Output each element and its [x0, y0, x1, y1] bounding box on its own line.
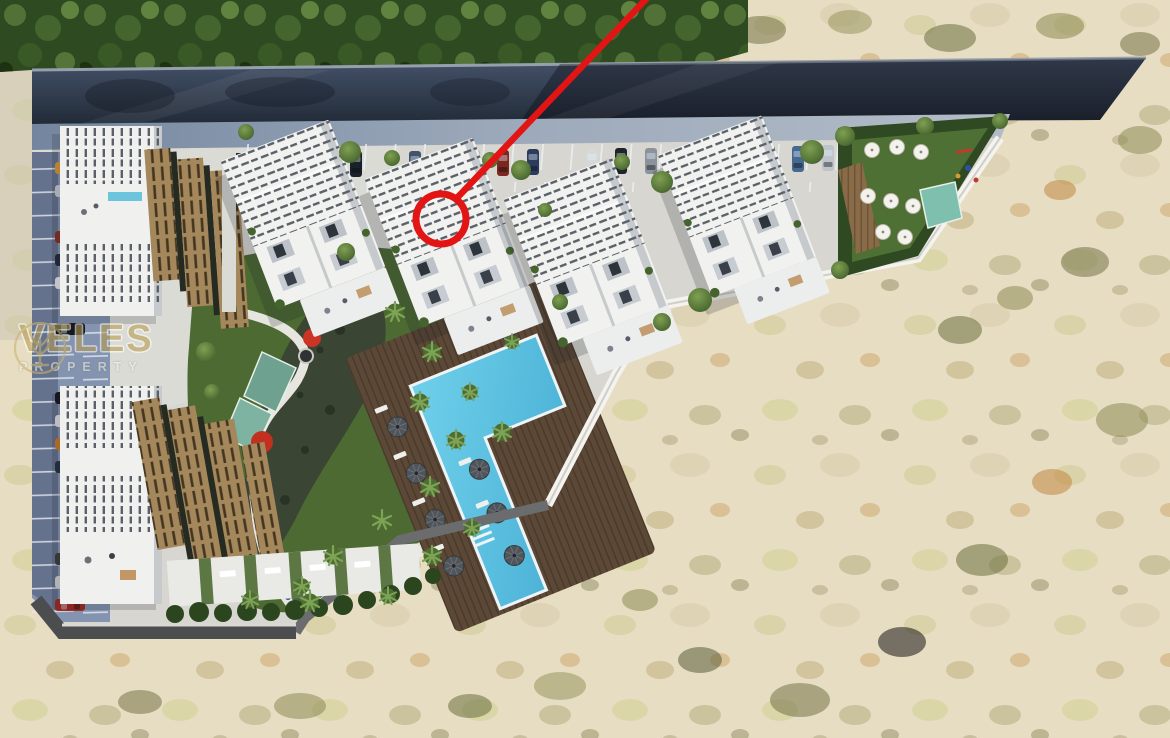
aerial-site-render: VELES PROPERTY [0, 0, 1170, 738]
road [32, 58, 1146, 124]
scene-canvas [0, 0, 1170, 738]
terrace-pool [108, 192, 142, 201]
fire-pit [299, 349, 313, 363]
